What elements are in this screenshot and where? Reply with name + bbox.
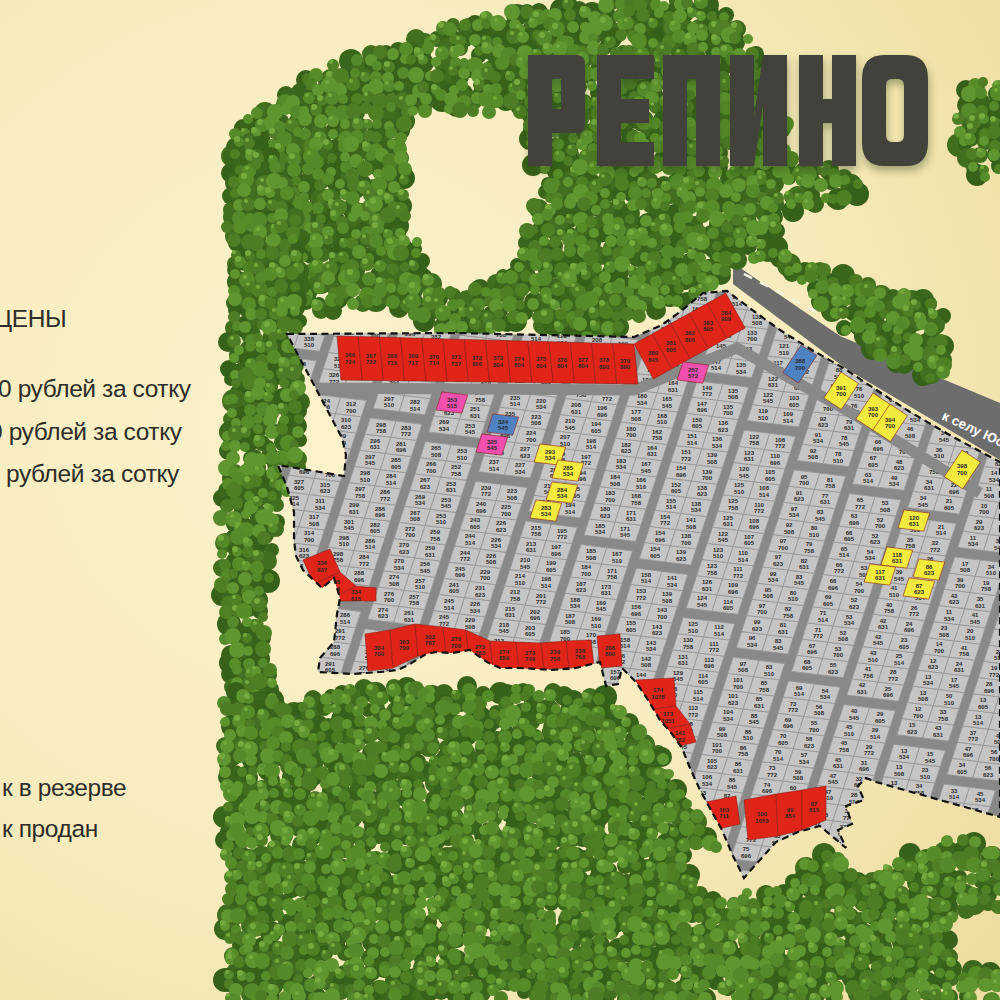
svg-text:758: 758 (510, 596, 521, 602)
svg-text:259: 259 (425, 545, 436, 551)
svg-text:282: 282 (410, 399, 421, 405)
svg-text:696: 696 (631, 611, 642, 617)
svg-text:50: 50 (946, 693, 953, 699)
svg-text:45: 45 (846, 724, 853, 730)
svg-text:153: 153 (636, 588, 647, 594)
svg-text:837: 837 (317, 567, 328, 573)
svg-text:772: 772 (557, 534, 568, 540)
svg-text:772: 772 (688, 712, 699, 718)
svg-text:314: 314 (304, 530, 315, 536)
svg-text:514: 514 (973, 720, 984, 726)
svg-text:805: 805 (703, 326, 714, 332)
svg-text:334: 334 (351, 589, 362, 595)
svg-text:605: 605 (778, 740, 789, 746)
svg-text:286: 286 (340, 612, 351, 618)
svg-text:286: 286 (380, 489, 391, 495)
svg-text:508: 508 (707, 459, 718, 465)
svg-text:772: 772 (335, 635, 346, 641)
svg-text:110: 110 (738, 550, 748, 556)
svg-text:510: 510 (779, 350, 790, 356)
svg-text:749: 749 (525, 656, 536, 662)
svg-text:534: 534 (813, 438, 824, 444)
svg-text:758: 758 (451, 471, 462, 477)
svg-text:75: 75 (743, 846, 750, 852)
svg-text:605: 605 (868, 462, 879, 468)
svg-text:156: 156 (631, 604, 642, 610)
svg-text:700: 700 (712, 748, 723, 754)
svg-text:631: 631 (425, 552, 436, 558)
svg-text:605: 605 (844, 536, 855, 542)
svg-text:700: 700 (681, 540, 692, 546)
svg-text:534: 534 (899, 754, 910, 760)
svg-text:631: 631 (857, 689, 868, 695)
svg-text:274: 274 (389, 574, 400, 580)
svg-text:534: 534 (944, 616, 955, 622)
svg-text:534: 534 (889, 481, 900, 487)
svg-text:514: 514 (714, 631, 725, 637)
svg-text:605: 605 (525, 631, 536, 637)
svg-text:170: 170 (586, 632, 597, 638)
svg-text:21: 21 (946, 498, 953, 504)
svg-text:605: 605 (698, 679, 709, 685)
svg-text:623: 623 (928, 664, 939, 670)
svg-text:508: 508 (465, 624, 476, 630)
svg-text:545: 545 (815, 516, 826, 522)
svg-text:534: 534 (415, 500, 426, 506)
svg-text:772: 772 (380, 496, 391, 502)
svg-text:514: 514 (365, 544, 376, 550)
svg-text:56: 56 (985, 765, 992, 771)
svg-text:510: 510 (415, 584, 426, 590)
svg-text:126: 126 (702, 579, 713, 585)
svg-text:508: 508 (738, 667, 749, 673)
svg-text:534: 534 (975, 797, 986, 803)
svg-text:226: 226 (496, 520, 507, 526)
svg-text:34: 34 (920, 495, 927, 501)
svg-text:514: 514 (620, 643, 631, 649)
svg-text:623: 623 (341, 424, 352, 430)
svg-text:139: 139 (676, 549, 687, 555)
svg-text:151: 151 (681, 449, 692, 455)
svg-text:508: 508 (894, 771, 905, 777)
svg-text:197: 197 (551, 544, 562, 550)
svg-text:299: 299 (349, 502, 360, 508)
svg-text:109: 109 (728, 582, 739, 588)
svg-text:758: 758 (905, 543, 916, 549)
svg-text:71: 71 (820, 610, 827, 616)
svg-text:696: 696 (455, 572, 466, 578)
svg-text:311: 311 (315, 498, 325, 504)
svg-text:508: 508 (486, 559, 497, 565)
svg-text:508: 508 (752, 320, 763, 326)
svg-text:15: 15 (927, 751, 934, 757)
svg-text:508: 508 (586, 555, 597, 561)
svg-text:722: 722 (366, 359, 377, 365)
svg-text:623: 623 (707, 764, 718, 770)
svg-text:605: 605 (823, 601, 834, 607)
svg-text:534: 534 (747, 642, 758, 648)
svg-text:101: 101 (728, 693, 739, 699)
svg-text:369: 369 (408, 353, 419, 359)
svg-text:909: 909 (721, 316, 732, 322)
svg-text:534: 534 (667, 582, 678, 588)
svg-text:631: 631 (668, 387, 679, 393)
svg-text:291: 291 (335, 628, 346, 634)
svg-text:113: 113 (688, 705, 698, 711)
svg-text:111: 111 (733, 566, 743, 572)
svg-text:623: 623 (420, 484, 431, 490)
svg-text:545: 545 (641, 468, 652, 474)
svg-text:700: 700 (747, 336, 758, 342)
svg-text:605: 605 (692, 423, 703, 429)
svg-text:514: 514 (444, 605, 455, 611)
svg-text:534: 534 (712, 443, 723, 449)
svg-text:758: 758 (863, 673, 874, 679)
svg-text:696: 696 (676, 472, 687, 478)
svg-text:514: 514 (818, 617, 829, 623)
svg-text:805: 805 (685, 337, 696, 343)
svg-text:534: 534 (820, 694, 831, 700)
svg-text:623: 623 (520, 453, 531, 459)
svg-text:514: 514 (738, 557, 749, 563)
svg-text:605: 605 (957, 769, 968, 775)
svg-text:514: 514 (870, 734, 881, 740)
svg-text:534: 534 (470, 608, 481, 614)
svg-text:534: 534 (865, 555, 876, 561)
svg-text:700: 700 (833, 652, 844, 658)
svg-text:514: 514 (839, 552, 850, 558)
svg-text:194: 194 (591, 421, 602, 427)
svg-text:104: 104 (723, 709, 734, 715)
svg-text:508: 508 (389, 581, 400, 587)
svg-text:97: 97 (775, 554, 782, 560)
svg-text:136: 136 (718, 420, 729, 426)
svg-text:545: 545 (499, 628, 510, 634)
svg-text:57: 57 (801, 752, 808, 758)
svg-text:121: 121 (779, 343, 790, 349)
svg-text:508: 508 (984, 493, 995, 499)
svg-text:25: 25 (896, 653, 903, 659)
svg-text:514: 514 (783, 418, 794, 424)
svg-text:265: 265 (431, 445, 442, 451)
svg-text:545: 545 (520, 564, 531, 570)
svg-text:65: 65 (857, 497, 864, 503)
svg-text:605: 605 (671, 488, 682, 494)
svg-text:510: 510 (688, 628, 699, 634)
svg-text:623: 623 (378, 613, 389, 619)
svg-text:510: 510 (833, 458, 844, 464)
svg-text:545: 545 (662, 403, 673, 409)
svg-text:508: 508 (309, 521, 320, 527)
svg-text:510: 510 (560, 441, 571, 447)
svg-text:623: 623 (894, 465, 905, 471)
svg-text:510: 510 (515, 580, 526, 586)
svg-text:245: 245 (439, 614, 450, 620)
svg-text:696: 696 (762, 788, 773, 794)
svg-text:82: 82 (785, 606, 792, 612)
svg-text:99: 99 (754, 619, 761, 625)
svg-text:508: 508 (410, 516, 421, 522)
svg-text:545: 545 (420, 568, 431, 574)
svg-text:510: 510 (868, 657, 879, 663)
svg-text:43: 43 (870, 650, 877, 656)
svg-text:696: 696 (697, 407, 708, 413)
svg-text:136: 136 (712, 436, 723, 442)
svg-text:43: 43 (935, 725, 942, 731)
svg-text:758: 758 (355, 493, 366, 499)
svg-text:534: 534 (723, 716, 734, 722)
svg-text:210: 210 (520, 557, 531, 563)
svg-text:737: 737 (451, 361, 462, 367)
svg-text:70: 70 (775, 749, 782, 755)
svg-text:13: 13 (980, 697, 987, 703)
svg-text:135: 135 (736, 362, 747, 368)
svg-text:772: 772 (775, 443, 786, 449)
svg-text:772: 772 (681, 456, 692, 462)
svg-text:631: 631 (404, 617, 415, 623)
svg-text:141: 141 (686, 517, 697, 523)
svg-text:545: 545 (498, 425, 509, 431)
svg-text:696: 696 (728, 589, 739, 595)
svg-text:700: 700 (605, 497, 616, 503)
svg-text:510: 510 (657, 419, 668, 425)
svg-text:631: 631 (878, 624, 889, 630)
svg-text:534: 534 (315, 505, 326, 511)
svg-text:253: 253 (457, 448, 468, 454)
svg-text:28: 28 (851, 792, 858, 798)
svg-text:545: 545 (828, 779, 839, 785)
svg-text:696: 696 (597, 412, 608, 418)
svg-text:623: 623 (576, 587, 587, 593)
svg-text:700: 700 (979, 509, 990, 515)
svg-text:11: 11 (986, 486, 993, 492)
svg-text:508: 508 (838, 636, 849, 642)
svg-text:696: 696 (770, 460, 781, 466)
svg-text:631: 631 (892, 558, 903, 564)
svg-text:508: 508 (631, 416, 642, 422)
svg-text:514: 514 (586, 444, 597, 450)
svg-text:244: 244 (465, 533, 476, 539)
svg-text:758: 758 (783, 613, 794, 619)
svg-text:33: 33 (940, 709, 947, 715)
svg-text:631: 631 (799, 564, 810, 570)
svg-text:696: 696 (749, 524, 760, 530)
svg-text:86: 86 (729, 777, 736, 783)
svg-text:545: 545 (565, 425, 576, 431)
svg-text:758: 758 (884, 608, 895, 614)
svg-text:23: 23 (922, 767, 929, 773)
svg-text:139: 139 (707, 452, 718, 458)
svg-text:508: 508 (814, 710, 825, 716)
svg-text:605: 605 (546, 567, 557, 573)
svg-text:252: 252 (451, 464, 462, 470)
svg-text:510: 510 (934, 453, 945, 459)
svg-text:534: 534 (563, 471, 574, 477)
svg-text:700: 700 (913, 713, 924, 719)
svg-text:326: 326 (329, 372, 340, 378)
svg-text:508: 508 (918, 696, 929, 702)
svg-text:700: 700 (795, 365, 806, 371)
svg-text:758: 758 (376, 428, 387, 434)
svg-text:854: 854 (785, 813, 796, 819)
svg-text:514: 514 (773, 756, 784, 762)
svg-text:139: 139 (662, 591, 673, 597)
svg-text:83: 83 (817, 509, 824, 515)
svg-text:758: 758 (759, 687, 770, 693)
svg-text:700: 700 (346, 408, 357, 414)
svg-text:696: 696 (396, 447, 407, 453)
svg-text:508: 508 (565, 619, 576, 625)
svg-text:623: 623 (728, 700, 739, 706)
svg-text:231: 231 (475, 585, 486, 591)
svg-text:696: 696 (330, 651, 341, 657)
svg-text:605: 605 (449, 588, 460, 594)
svg-text:772: 772 (733, 573, 744, 579)
svg-text:45: 45 (841, 740, 848, 746)
svg-text:715: 715 (387, 360, 398, 366)
svg-text:28: 28 (890, 669, 897, 675)
svg-text:378: 378 (599, 357, 610, 363)
svg-text:39: 39 (896, 569, 903, 575)
svg-text:243: 243 (470, 517, 481, 523)
svg-text:859: 859 (499, 655, 510, 661)
svg-text:534: 534 (616, 464, 627, 470)
svg-text:768: 768 (575, 654, 586, 660)
svg-text:700: 700 (809, 727, 820, 733)
svg-text:100: 100 (757, 811, 768, 817)
svg-text:534: 534 (646, 646, 657, 652)
svg-text:696: 696 (375, 512, 386, 518)
svg-text:508: 508 (960, 567, 971, 573)
svg-text:700: 700 (957, 470, 968, 476)
svg-text:508: 508 (939, 632, 950, 638)
svg-text:605: 605 (944, 505, 955, 511)
svg-text:69: 69 (825, 594, 832, 600)
svg-text:514: 514 (894, 660, 905, 666)
svg-text:623: 623 (718, 427, 729, 433)
svg-text:631: 631 (924, 485, 935, 491)
svg-text:696: 696 (984, 688, 995, 694)
svg-text:605: 605 (744, 540, 755, 546)
svg-text:758: 758 (631, 500, 642, 506)
svg-text:151: 151 (687, 433, 698, 439)
svg-text:143: 143 (657, 607, 668, 613)
svg-text:758: 758 (738, 751, 749, 757)
svg-text:772: 772 (864, 750, 875, 756)
svg-text:105: 105 (765, 469, 776, 475)
svg-text:115: 115 (693, 689, 703, 695)
svg-text:631: 631 (723, 521, 734, 527)
svg-text:534: 534 (541, 511, 552, 517)
svg-text:270: 270 (399, 542, 410, 548)
svg-text:696: 696 (807, 649, 818, 655)
svg-text:623: 623 (600, 513, 611, 519)
svg-text:700: 700 (836, 391, 847, 397)
svg-text:631: 631 (744, 456, 755, 462)
svg-text:534: 534 (439, 426, 450, 432)
svg-text:184: 184 (581, 564, 592, 570)
svg-text:605: 605 (370, 528, 381, 534)
svg-text:124: 124 (697, 595, 708, 601)
svg-text:508: 508 (717, 732, 728, 738)
svg-text:144: 144 (636, 672, 647, 678)
svg-text:199: 199 (546, 560, 557, 566)
svg-text:1053: 1053 (755, 818, 769, 824)
svg-text:545: 545 (763, 398, 774, 404)
svg-text:572: 572 (688, 373, 699, 379)
svg-text:631: 631 (844, 425, 855, 431)
svg-text:514: 514 (541, 583, 552, 589)
svg-text:510: 510 (457, 455, 468, 461)
svg-text:623: 623 (924, 570, 935, 576)
svg-text:623: 623 (752, 626, 763, 632)
svg-text:815: 815 (809, 807, 820, 813)
svg-text:623: 623 (974, 525, 985, 531)
svg-text:79: 79 (806, 541, 813, 547)
svg-text:605: 605 (591, 428, 602, 434)
svg-text:119: 119 (758, 408, 768, 414)
svg-text:514: 514 (794, 691, 805, 697)
svg-text:772: 772 (968, 736, 979, 742)
svg-text:ЦЕНЫ: ЦЕНЫ (0, 305, 66, 332)
svg-text:623: 623 (849, 604, 860, 610)
svg-text:700: 700 (875, 523, 886, 529)
svg-text:696: 696 (704, 663, 715, 669)
svg-text:208: 208 (592, 337, 603, 343)
svg-text:545: 545 (596, 606, 607, 612)
svg-text:55: 55 (830, 662, 837, 668)
svg-text:66: 66 (830, 578, 837, 584)
svg-text:рублей за сотку: рублей за сотку (6, 460, 180, 487)
svg-text:700: 700 (384, 597, 395, 603)
svg-text:229: 229 (465, 617, 476, 623)
svg-text:23: 23 (941, 625, 948, 631)
svg-text:772: 772 (767, 772, 778, 778)
svg-text:545: 545 (697, 602, 708, 608)
svg-text:336: 336 (317, 560, 328, 566)
svg-text:508: 508 (686, 524, 697, 530)
svg-text:12: 12 (915, 706, 922, 712)
svg-text:805: 805 (666, 347, 677, 353)
svg-text:514: 514 (863, 478, 874, 484)
svg-text:508: 508 (793, 775, 804, 781)
svg-text:514: 514 (711, 365, 722, 371)
svg-text:696: 696 (741, 853, 752, 859)
svg-text:631: 631 (954, 667, 965, 673)
svg-text:510: 510 (713, 553, 724, 559)
svg-text:227: 227 (520, 446, 531, 452)
svg-text:545: 545 (949, 683, 960, 689)
svg-text:700: 700 (581, 571, 592, 577)
svg-text:623: 623 (621, 448, 632, 454)
svg-text:545: 545 (873, 640, 884, 646)
svg-text:508: 508 (507, 495, 518, 501)
svg-text:53: 53 (882, 500, 889, 506)
svg-text:168: 168 (631, 493, 642, 499)
svg-text:101: 101 (733, 677, 744, 683)
svg-text:138: 138 (681, 533, 692, 539)
svg-text:631: 631 (626, 516, 637, 522)
svg-text:545: 545 (620, 532, 631, 538)
svg-text:55: 55 (811, 720, 818, 726)
svg-text:510: 510 (360, 477, 371, 483)
svg-text:880: 880 (605, 651, 616, 657)
svg-text:631: 631 (601, 590, 612, 596)
svg-text:177: 177 (631, 409, 642, 415)
svg-text:700: 700 (501, 511, 512, 517)
svg-text:267: 267 (420, 477, 431, 483)
svg-text:631: 631 (909, 521, 920, 527)
